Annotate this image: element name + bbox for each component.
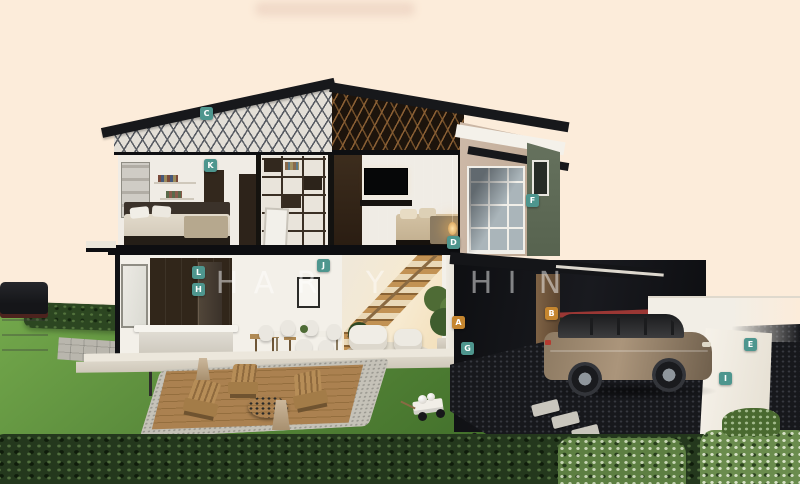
- marker-h[interactable]: H: [192, 283, 205, 296]
- marker-l[interactable]: L: [192, 266, 205, 279]
- marker-d[interactable]: D: [447, 236, 460, 249]
- marker-k[interactable]: K: [204, 159, 217, 172]
- marker-b[interactable]: B: [545, 307, 558, 320]
- marker-g[interactable]: G: [461, 342, 474, 355]
- house-cutaway-scene: HARYHIN ABCDEFGHIJKL: [0, 0, 800, 484]
- marker-c[interactable]: C: [200, 107, 213, 120]
- marker-e[interactable]: E: [744, 338, 757, 351]
- marker-i[interactable]: I: [719, 372, 732, 385]
- marker-f[interactable]: F: [526, 194, 539, 207]
- marker-j[interactable]: J: [317, 259, 330, 272]
- marker-a[interactable]: A: [452, 316, 465, 329]
- marker-layer: ABCDEFGHIJKL: [0, 0, 800, 484]
